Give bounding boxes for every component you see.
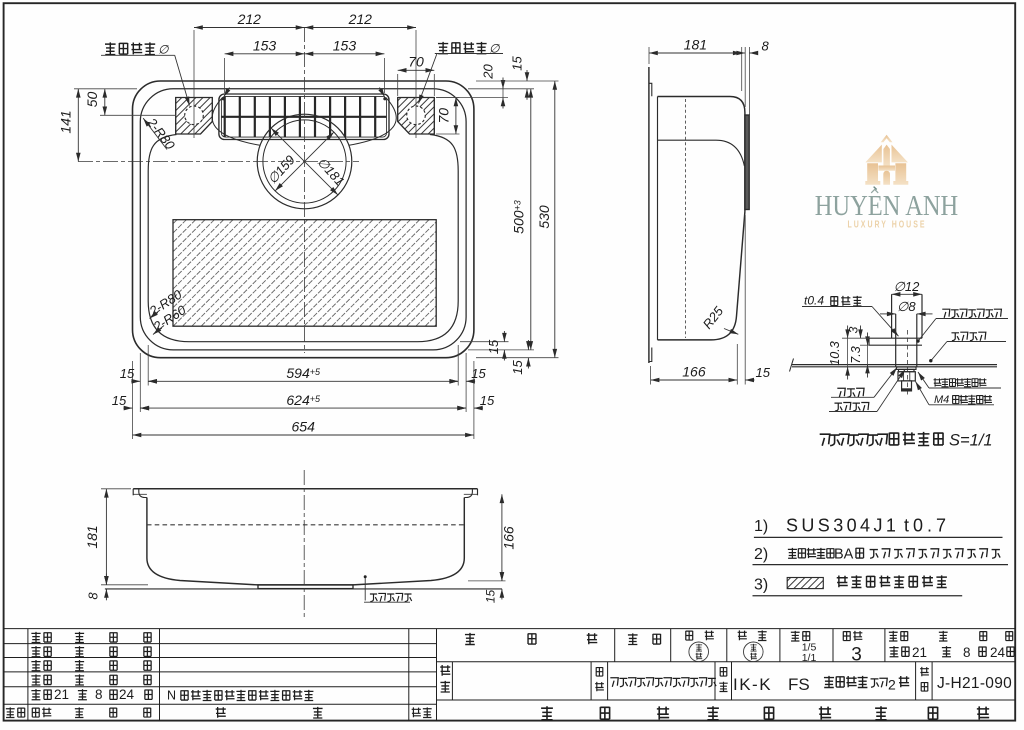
svg-text:15: 15: [112, 393, 127, 408]
svg-text:HUYEN ANH: HUYEN ANH: [815, 191, 959, 222]
svg-text:∅12: ∅12: [894, 279, 921, 294]
svg-text:8: 8: [762, 39, 770, 54]
svg-text:181: 181: [684, 37, 707, 53]
svg-text:J-H21-090: J-H21-090: [937, 675, 1012, 692]
svg-text:7.3: 7.3: [849, 346, 863, 363]
svg-text:50: 50: [84, 92, 100, 108]
svg-text:IK-K: IK-K: [733, 675, 772, 694]
svg-text:212: 212: [348, 11, 373, 27]
svg-text:15: 15: [480, 393, 495, 408]
svg-text:S=1/1: S=1/1: [949, 432, 993, 450]
svg-text:∅: ∅: [158, 43, 169, 57]
svg-text:10.3: 10.3: [828, 341, 842, 365]
svg-text:15: 15: [471, 366, 486, 381]
svg-text:153: 153: [333, 37, 357, 53]
svg-text:166: 166: [682, 364, 706, 380]
svg-text:3: 3: [851, 645, 862, 666]
svg-text:15: 15: [509, 56, 524, 71]
svg-text:15: 15: [756, 365, 771, 380]
svg-text:24: 24: [990, 645, 1006, 660]
svg-text:FS: FS: [788, 675, 810, 694]
svg-text:2): 2): [754, 546, 768, 563]
svg-text:15: 15: [486, 339, 501, 354]
svg-text:70: 70: [436, 108, 452, 124]
svg-text:15: 15: [510, 360, 525, 375]
svg-text:∅8: ∅8: [897, 299, 916, 314]
svg-text:t0.7: t0.7: [904, 516, 950, 536]
svg-text:15: 15: [484, 590, 498, 604]
svg-text:166: 166: [501, 526, 517, 550]
svg-text:t0.4: t0.4: [804, 294, 824, 308]
svg-text:654: 654: [292, 419, 316, 435]
svg-text:3): 3): [754, 577, 768, 594]
svg-text:1): 1): [754, 518, 768, 535]
svg-text:181: 181: [84, 525, 100, 548]
svg-text:70: 70: [408, 54, 424, 70]
svg-text:1/1: 1/1: [802, 652, 817, 664]
svg-text:LUXURY HOUSE: LUXURY HOUSE: [848, 218, 927, 230]
svg-text:8: 8: [963, 645, 971, 660]
svg-text:BA: BA: [834, 547, 854, 563]
svg-text:15: 15: [120, 366, 135, 381]
svg-text:2: 2: [888, 677, 896, 693]
svg-text:8: 8: [86, 592, 101, 600]
svg-text:141: 141: [57, 110, 73, 133]
svg-text:SUS304J1: SUS304J1: [786, 516, 899, 536]
svg-text:M4: M4: [934, 394, 949, 406]
svg-text:3: 3: [846, 326, 860, 333]
svg-text:20: 20: [480, 64, 495, 80]
svg-text:21: 21: [912, 645, 927, 660]
svg-text:153: 153: [253, 37, 277, 53]
svg-text:N: N: [167, 689, 176, 703]
svg-text:24: 24: [119, 687, 135, 702]
svg-text:530: 530: [536, 205, 552, 229]
svg-text:212: 212: [237, 11, 262, 27]
svg-text:8: 8: [95, 687, 103, 702]
svg-text:21: 21: [54, 687, 69, 702]
